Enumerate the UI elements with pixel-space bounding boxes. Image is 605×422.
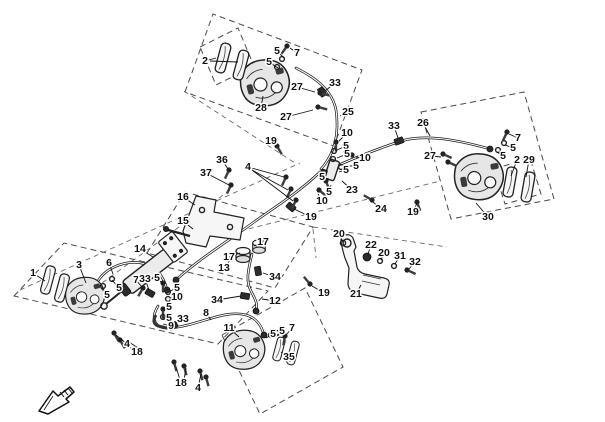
bolt-4 <box>203 374 211 387</box>
brake-pad-2 <box>502 166 517 197</box>
callout-label-7: 7 <box>289 322 295 334</box>
callout-label-5: 5 <box>270 328 276 340</box>
bracket-16 <box>183 196 244 247</box>
callout-label-19: 19 <box>407 206 419 218</box>
clamp-34 <box>240 292 250 299</box>
brake-pad-1 <box>40 265 57 295</box>
callout-label-12: 12 <box>269 295 281 307</box>
brake-system-exploded-diagram: 1362575272827332519105510555523102419332… <box>0 0 605 422</box>
front-direction-icon <box>39 387 74 414</box>
callout-label-11: 11 <box>223 322 234 334</box>
callout-label-5: 5 <box>319 171 325 183</box>
callout-label-19: 19 <box>305 211 317 223</box>
callout-label-5: 5 <box>266 56 272 68</box>
bolt-7 <box>501 129 511 142</box>
clamp-34 <box>254 266 261 276</box>
callout-label-20: 20 <box>333 228 345 240</box>
callout-label-5: 5 <box>154 272 160 284</box>
callout-label-33: 33 <box>388 120 400 132</box>
callout-label-22: 22 <box>365 239 377 251</box>
callout-label-10: 10 <box>341 127 353 139</box>
callout-label-18: 18 <box>131 346 143 358</box>
callout-label-8: 8 <box>203 307 209 319</box>
callout-label-20: 20 <box>378 247 390 259</box>
callout-label-33: 33 <box>139 273 151 285</box>
callout-label-4: 4 <box>245 161 251 173</box>
callout-label-32: 32 <box>409 256 421 268</box>
callout-label-37: 37 <box>200 167 212 179</box>
callout-label-15: 15 <box>177 215 189 227</box>
callout-label-35: 35 <box>283 351 295 363</box>
callout-label-5: 5 <box>104 289 110 301</box>
callout-label-7: 7 <box>294 47 300 59</box>
callout-label-33: 33 <box>329 77 341 89</box>
callout-label-17: 17 <box>223 251 235 263</box>
callout-label-36: 36 <box>216 154 228 166</box>
callout-label-19: 19 <box>265 135 277 147</box>
callout-label-31: 31 <box>394 250 406 262</box>
callout-label-5: 5 <box>510 142 516 154</box>
banjo-fitting <box>253 308 259 314</box>
callout-label-17: 17 <box>257 236 269 248</box>
callout-label-5: 5 <box>116 282 122 294</box>
bolt-7 <box>279 42 290 55</box>
parts-diagram-page: 1362575272827332519105510555523102419332… <box>0 0 605 422</box>
callout-label-28: 28 <box>255 102 267 114</box>
callout-label-5: 5 <box>279 325 285 337</box>
association-line-6 <box>313 229 316 258</box>
bolt-27 <box>445 159 458 169</box>
callout-label-5: 5 <box>274 45 280 57</box>
callout-label-21: 21 <box>350 288 362 300</box>
callout-label-33: 33 <box>177 313 189 325</box>
callout-label-16: 16 <box>177 191 189 203</box>
callout-label-23: 23 <box>346 184 358 196</box>
callout-label-5: 5 <box>343 164 349 176</box>
callout-label-13: 13 <box>218 262 230 274</box>
callout-label-5: 5 <box>344 148 350 160</box>
washer-31 <box>392 264 397 269</box>
callout-label-1: 1 <box>30 267 36 279</box>
callout-label-6: 6 <box>106 257 112 269</box>
callout-label-18: 18 <box>175 377 187 389</box>
bolt-18 <box>171 359 179 372</box>
callout-label-2: 2 <box>514 154 520 166</box>
callout-label-29: 29 <box>523 154 535 166</box>
callout-label-3: 3 <box>76 259 82 271</box>
hose-12 <box>248 254 257 311</box>
callout-label-25: 25 <box>342 106 354 118</box>
callout-label-10: 10 <box>171 291 183 303</box>
banjo-fitting <box>261 332 267 338</box>
bolt-27 <box>315 104 328 112</box>
bolt-27 <box>440 151 453 161</box>
callout-label-14: 14 <box>134 243 146 255</box>
callout-label-34: 34 <box>269 271 281 283</box>
washer-5 <box>502 141 507 146</box>
callout-label-27: 27 <box>280 111 292 123</box>
callout-label-5: 5 <box>500 150 506 162</box>
callout-label-27: 27 <box>424 150 436 162</box>
bolt-4 <box>280 174 290 187</box>
bolt-19 <box>302 275 314 288</box>
callout-label-19: 19 <box>318 287 330 299</box>
clamp-33 <box>394 137 405 146</box>
reservoir-cap-17 <box>236 248 250 263</box>
callout-leader-4 <box>248 167 284 177</box>
brake-pad-2 <box>214 42 231 74</box>
callout-label-26: 26 <box>417 117 429 129</box>
callout-label-4: 4 <box>124 338 130 350</box>
callout-label-2: 2 <box>202 55 208 67</box>
callout-label-10: 10 <box>316 195 328 207</box>
callout-label-10: 10 <box>359 152 371 164</box>
stud-15-nut <box>163 226 168 231</box>
callout-label-27: 27 <box>291 81 303 93</box>
callout-label-24: 24 <box>375 203 387 215</box>
brake-pad-29 <box>520 171 535 202</box>
callout-label-34: 34 <box>211 294 223 306</box>
bushing-22 <box>363 253 371 261</box>
caliper-30 <box>451 150 507 204</box>
clamp-33 <box>145 288 156 298</box>
callout-label-5: 5 <box>353 160 359 172</box>
callout-label-4: 4 <box>195 382 201 394</box>
callout-label-7: 7 <box>515 132 521 144</box>
callout-label-9: 9 <box>168 320 174 332</box>
callout-label-30: 30 <box>482 211 494 223</box>
banjo-fitting <box>487 146 493 152</box>
